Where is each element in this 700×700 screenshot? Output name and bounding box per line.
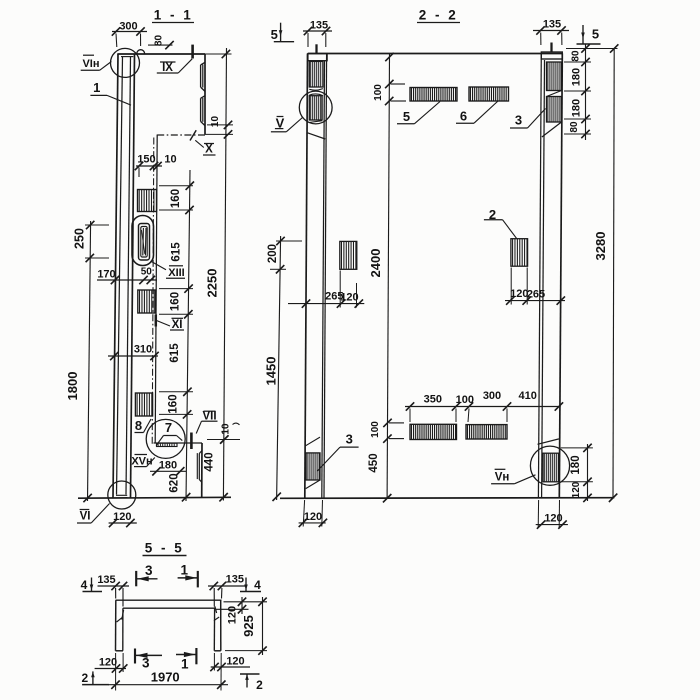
svg-text:120: 120 xyxy=(304,511,322,523)
svg-text:3: 3 xyxy=(346,432,353,447)
svg-text:300: 300 xyxy=(119,21,137,33)
svg-text:120: 120 xyxy=(113,511,131,523)
svg-text:265: 265 xyxy=(527,289,545,301)
svg-text:3: 3 xyxy=(145,563,153,578)
svg-text:100: 100 xyxy=(373,84,384,101)
svg-text:1: 1 xyxy=(93,80,100,95)
svg-text:7: 7 xyxy=(165,420,172,435)
svg-text:5: 5 xyxy=(403,109,410,124)
svg-text:100: 100 xyxy=(370,421,381,438)
svg-text:80: 80 xyxy=(571,50,582,62)
svg-text:VIн: VIн xyxy=(82,58,99,70)
svg-text:120: 120 xyxy=(340,292,358,304)
svg-text:160: 160 xyxy=(170,189,182,208)
svg-text:8: 8 xyxy=(135,418,142,433)
svg-text:180: 180 xyxy=(571,68,583,86)
svg-text:80: 80 xyxy=(154,35,165,47)
svg-text:VI: VI xyxy=(80,511,91,523)
svg-text:615: 615 xyxy=(169,343,181,363)
svg-text:XIII: XIII xyxy=(168,267,185,279)
svg-text:IX: IX xyxy=(162,62,173,74)
svg-text:310: 310 xyxy=(134,344,152,356)
svg-text:3: 3 xyxy=(515,113,522,128)
svg-text:5 - 5: 5 - 5 xyxy=(145,541,185,556)
svg-text:4: 4 xyxy=(254,578,261,592)
svg-text:5: 5 xyxy=(271,27,278,42)
svg-text:615: 615 xyxy=(171,242,183,262)
svg-text:120: 120 xyxy=(226,656,244,668)
svg-text:5: 5 xyxy=(592,27,599,42)
svg-text:120: 120 xyxy=(571,481,582,498)
svg-text:2: 2 xyxy=(81,671,88,685)
svg-text:100: 100 xyxy=(456,394,474,406)
svg-text:160: 160 xyxy=(170,292,182,311)
svg-text:120: 120 xyxy=(99,657,117,669)
svg-text:450: 450 xyxy=(368,453,380,472)
svg-text:135: 135 xyxy=(543,19,561,31)
svg-text:2400: 2400 xyxy=(368,249,383,278)
svg-text:200: 200 xyxy=(267,244,279,263)
svg-text:135: 135 xyxy=(310,20,328,32)
svg-text:X: X xyxy=(205,144,213,156)
svg-text:10: 10 xyxy=(210,116,221,128)
svg-text:1: 1 xyxy=(181,657,189,672)
svg-text:180: 180 xyxy=(159,460,177,472)
svg-text:10: 10 xyxy=(221,423,232,435)
svg-text:2: 2 xyxy=(256,678,263,692)
svg-text:80: 80 xyxy=(569,121,580,133)
svg-text:160: 160 xyxy=(168,394,180,413)
svg-text:2 - 2: 2 - 2 xyxy=(419,8,459,23)
svg-text:135: 135 xyxy=(97,574,115,586)
svg-text:2250: 2250 xyxy=(205,269,220,298)
svg-text:300: 300 xyxy=(483,390,501,402)
svg-text:620: 620 xyxy=(169,473,181,492)
svg-text:4: 4 xyxy=(81,578,88,592)
svg-text:135: 135 xyxy=(226,574,244,586)
svg-text:XVн: XVн xyxy=(131,456,152,468)
svg-text:3: 3 xyxy=(142,656,150,671)
svg-text:1450: 1450 xyxy=(263,357,278,386)
svg-text:350: 350 xyxy=(424,394,442,406)
svg-text:1800: 1800 xyxy=(65,372,80,401)
svg-text:1: 1 xyxy=(181,563,189,578)
svg-text:120: 120 xyxy=(226,606,238,624)
svg-text:XI: XI xyxy=(172,319,183,331)
svg-text:50: 50 xyxy=(141,267,153,278)
svg-text:1 - 1: 1 - 1 xyxy=(154,8,194,23)
svg-text:120: 120 xyxy=(510,288,528,300)
svg-text:6: 6 xyxy=(460,109,467,124)
svg-text:170: 170 xyxy=(97,269,115,281)
svg-text:410: 410 xyxy=(519,390,537,402)
svg-text:925: 925 xyxy=(241,615,256,637)
svg-text:120: 120 xyxy=(544,512,562,524)
svg-text:150: 150 xyxy=(137,154,155,166)
svg-text:10: 10 xyxy=(164,154,176,166)
svg-text:1970: 1970 xyxy=(151,670,180,685)
svg-text:Vн: Vн xyxy=(495,472,510,484)
svg-text:3280: 3280 xyxy=(593,232,608,261)
svg-text:440: 440 xyxy=(204,452,216,471)
svg-text:180: 180 xyxy=(571,99,583,117)
svg-text:250: 250 xyxy=(73,228,87,249)
svg-text:180: 180 xyxy=(570,455,582,474)
